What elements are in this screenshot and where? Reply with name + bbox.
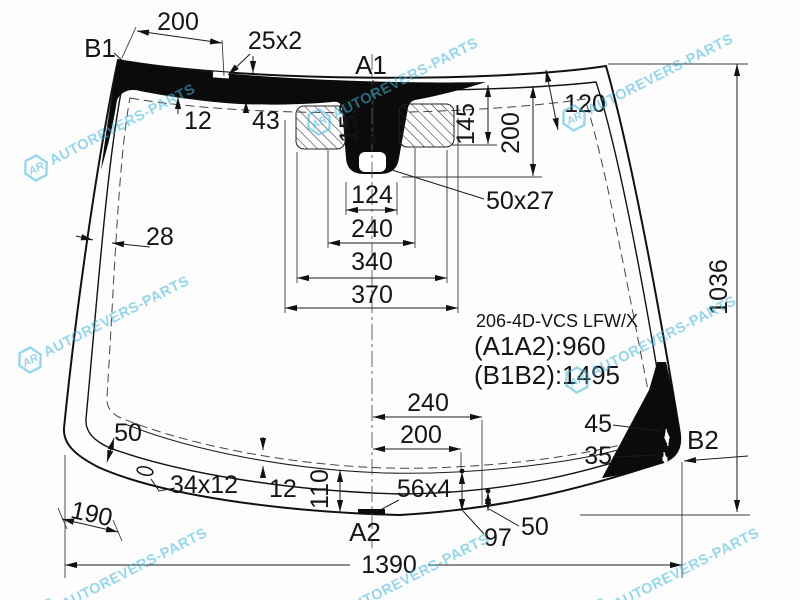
point-label-a2: A2 [349,517,381,547]
dim-notch-25x2: 25x2 [248,27,302,55]
dim-top-200: 200 [157,8,199,36]
dim-hole-50x27: 50x27 [486,187,554,215]
watermark-6: AR AUTOREVERS-PARTS [32,522,211,600]
dim-corner-35: 35 [584,442,612,470]
dim-sensor-370: 370 [351,281,393,309]
dim-sensor-200: 200 [497,112,525,154]
dim-edge-28: 28 [146,223,174,251]
band-notch-25x2 [213,71,229,78]
bar-56x4 [358,509,385,514]
dim-sensor-240: 240 [351,215,393,243]
dim-corner-190: 190 [68,496,115,532]
watermark-4: AR AUTOREVERS-PARTS [558,28,737,134]
dim-sensor-340: 340 [351,248,393,276]
dim-bottom-200: 200 [400,421,442,449]
dim-corner-45: 45 [584,410,612,438]
part-a1a2-length: (A1A2):960 [474,331,606,361]
dim-bottom-right-50: 50 [521,513,549,541]
point-label-b2: B2 [687,425,719,455]
dim-band-12: 12 [184,107,212,135]
svg-text:AUTOREVERS-PARTS: AUTOREVERS-PARTS [59,525,210,600]
bottom-frit-solid-line [125,424,618,473]
windshield-diagram-page: B1 200 25x2 A1 12 43 153 145 200 120 124… [0,0,800,600]
dim-hole-width-124: 124 [351,181,393,209]
dim-bottom-left-50: 50 [114,419,142,447]
watermark-8: AR AUTOREVERS-PARTS [584,522,763,600]
watermark-2: AR AUTOREVERS-PARTS [14,270,193,376]
dim-bottom-gap-12: 12 [269,475,297,503]
svg-text:AUTOREVERS-PARTS: AUTOREVERS-PARTS [41,273,192,361]
part-code: 206-4D-VCS LFW/X [476,311,638,331]
part-info-block: 206-4D-VCS LFW/X (A1A2):960 (B1B2):1495 [474,311,638,390]
dim-slot-34x12: 34x12 [170,471,238,499]
dim-sensor-145: 145 [452,103,480,145]
hatch-zone-right [399,104,454,147]
slot-34x12 [136,465,153,476]
windshield-technical-drawing: B1 200 25x2 A1 12 43 153 145 200 120 124… [0,0,800,600]
dim-bottom-240: 240 [407,389,449,417]
dim-band-43: 43 [252,107,280,135]
sensor-hole-50x27 [359,152,386,172]
dim-bottom-110: 110 [306,469,334,509]
point-label-a1: A1 [355,50,387,80]
dim-bar-56x4: 56x4 [397,475,451,503]
point-label-b1: B1 [84,33,116,63]
svg-text:AUTOREVERS-PARTS: AUTOREVERS-PARTS [611,525,762,600]
